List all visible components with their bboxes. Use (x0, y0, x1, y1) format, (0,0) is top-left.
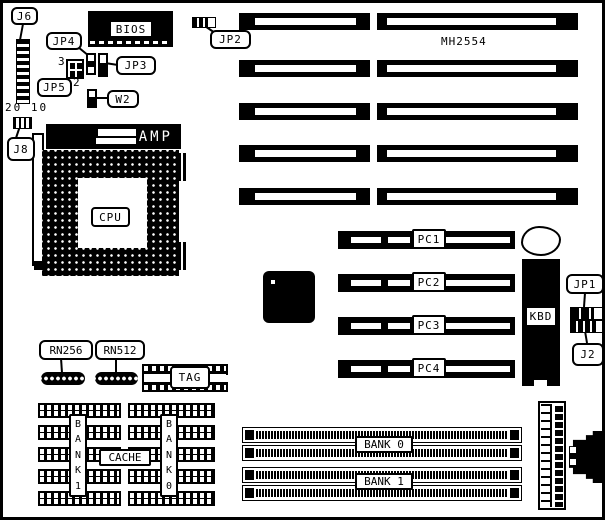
jp2-jumper (192, 17, 216, 28)
cpu-socket: CPU (42, 150, 179, 276)
jp4-jumper (86, 53, 96, 75)
pci-slot-3-label-text: PC3 (418, 320, 441, 331)
din-notch (570, 459, 576, 465)
jp2-label: JP2 (210, 30, 251, 49)
pci-slot-4-label: PC4 (412, 358, 446, 378)
pin3-annotation: 3 (58, 56, 65, 67)
pci-slot-2-label: PC2 (412, 272, 446, 292)
j2-jumper-row (570, 320, 604, 333)
j6-pin-header (16, 39, 30, 104)
j6-label: J6 (11, 7, 38, 25)
cache-label-text: CACHE (108, 452, 141, 463)
rn512-pack (95, 372, 138, 385)
jp5-label-text: JP5 (43, 82, 66, 93)
rn512-label: RN512 (95, 340, 145, 360)
simm-bank1-label: BANK 1 (355, 473, 413, 490)
kbd-label: KBD (525, 306, 557, 327)
jp3-label-text: JP3 (125, 60, 148, 71)
j8-connector (13, 117, 32, 129)
amp-key-notch (98, 129, 136, 136)
jp3-jumper (98, 53, 108, 77)
jp4-label: JP4 (46, 32, 82, 50)
cache-bank0-text: B A N K 0 (166, 417, 172, 494)
bios-label-text: BIOS (116, 24, 147, 35)
jp4-label-text: JP4 (53, 36, 76, 47)
pin2-annotation: 2 (73, 77, 80, 88)
pci-slot-3-label: PC3 (412, 315, 446, 335)
part-number: MH2554 (441, 36, 487, 47)
socket-clip-top (179, 153, 186, 181)
jp3-label: JP3 (116, 56, 156, 75)
socket-clip-bottom (179, 242, 186, 270)
j6-pin-numbers: 20 10 (5, 102, 48, 113)
din-notch (570, 447, 576, 453)
cpu-label-text: CPU (99, 212, 122, 223)
cache-bank1-text: B A N K 1 (75, 417, 81, 494)
j8-label: J8 (7, 137, 35, 161)
cache-label: CACHE (99, 449, 151, 466)
simm-bank0-label: BANK 0 (355, 436, 413, 453)
amp-connector: AMP (46, 124, 181, 149)
cache-bank1-label: B A N K 1 (69, 414, 87, 497)
rn256-label: RN256 (39, 340, 93, 360)
amp-key-notch (96, 138, 136, 144)
simm-bank0-text: BANK 0 (364, 439, 404, 450)
w2-label: W2 (107, 90, 139, 108)
bios-socket-dashes (90, 41, 171, 44)
pci-slot-1-label: PC1 (412, 229, 446, 249)
j8-label-text: J8 (13, 144, 28, 155)
w2-label-text: W2 (115, 94, 130, 105)
pci-slot-2-label-text: PC2 (418, 277, 441, 288)
cpu-label: CPU (91, 207, 130, 227)
cache-bank0-label: B A N K 0 (160, 414, 178, 497)
tag-label: TAG (170, 366, 210, 389)
bios-label: BIOS (109, 20, 153, 38)
jp1-jumper-row (570, 307, 604, 320)
kbd-connector: KBD (522, 259, 560, 386)
motherboard-diagram: J6 20 10 J8 BIOS JP2 JP4 JP3 3 2 JP5 W2 … (0, 0, 605, 520)
w2-jumper (87, 89, 97, 108)
rn256-label-text: RN256 (49, 345, 82, 356)
amp-label: AMP (139, 129, 173, 145)
socket-tab (34, 261, 43, 270)
jp5-label: JP5 (37, 78, 72, 97)
j6-label-text: J6 (17, 11, 32, 22)
j2-label-text: J2 (580, 349, 595, 360)
kbd-label-text: KBD (530, 311, 553, 322)
rn256-pack (41, 372, 85, 385)
j2-label: J2 (572, 343, 604, 366)
jp1-label-text: JP1 (574, 279, 597, 290)
jp1-label: JP1 (566, 274, 604, 294)
jp2-label-text: JP2 (219, 34, 242, 45)
simm-bank1-text: BANK 1 (364, 476, 404, 487)
tag-label-text: TAG (179, 372, 202, 383)
pci-slot-4-label-text: PC4 (418, 363, 441, 374)
pci-slot-1-label-text: PC1 (418, 234, 441, 245)
tag-chip: TAG (142, 364, 228, 392)
rn512-label-text: RN512 (103, 345, 136, 356)
tag-notch (226, 375, 230, 382)
kbd-notch (534, 380, 547, 386)
